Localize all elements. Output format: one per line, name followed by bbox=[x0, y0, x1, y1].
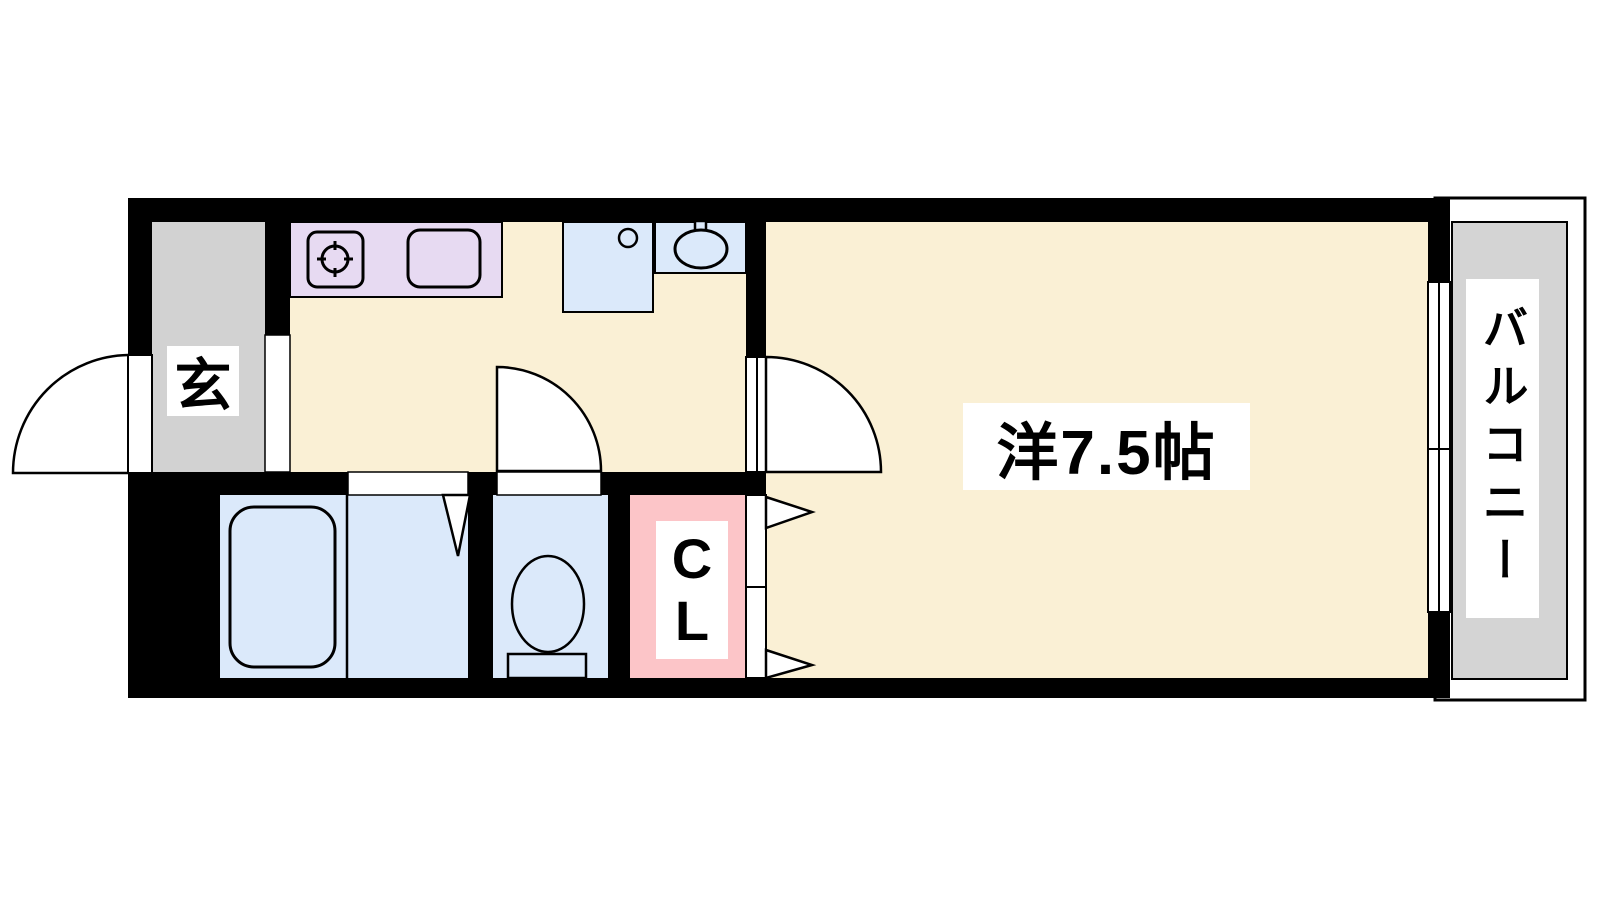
washing-machine-pan bbox=[563, 222, 653, 312]
wall-toilet-closet bbox=[608, 495, 630, 678]
balcony bbox=[1435, 198, 1585, 700]
wall-mid-band-center bbox=[468, 472, 497, 495]
entrance-step bbox=[265, 335, 290, 472]
balcony-floor bbox=[1452, 222, 1567, 679]
wall-top bbox=[128, 198, 1450, 222]
wall-entrance-kitchen bbox=[265, 222, 290, 335]
washbasin-icon bbox=[675, 230, 727, 268]
toilet-pedestal-icon bbox=[508, 654, 586, 678]
wall-washroom-toilet bbox=[468, 495, 493, 678]
entrance-floor bbox=[152, 222, 265, 472]
closet-floor bbox=[630, 495, 746, 678]
toilet-door-opening bbox=[497, 472, 601, 495]
washroom-door-opening bbox=[348, 472, 468, 495]
entrance-door-swing-arc bbox=[13, 355, 130, 473]
bathtub bbox=[230, 507, 335, 667]
wall-mid-band-east bbox=[601, 472, 746, 495]
entrance-door-leaf bbox=[128, 355, 152, 473]
wall-left-upper bbox=[128, 222, 152, 355]
wall-right-upper bbox=[1428, 222, 1450, 282]
floorplan-canvas: 玄 洋7.5帖 C L バルコニー bbox=[0, 0, 1600, 900]
wall-right-lower bbox=[1428, 612, 1450, 678]
toilet-icon bbox=[512, 556, 584, 652]
wall-kitchen-mainroom-stub bbox=[746, 472, 766, 495]
wall-kitchen-mainroom-upper bbox=[746, 222, 766, 357]
wall-mid-band-west bbox=[152, 472, 348, 495]
wall-bottom bbox=[128, 678, 1450, 698]
wall-left-deadspace bbox=[128, 473, 220, 698]
floorplan-svg bbox=[0, 0, 1600, 900]
